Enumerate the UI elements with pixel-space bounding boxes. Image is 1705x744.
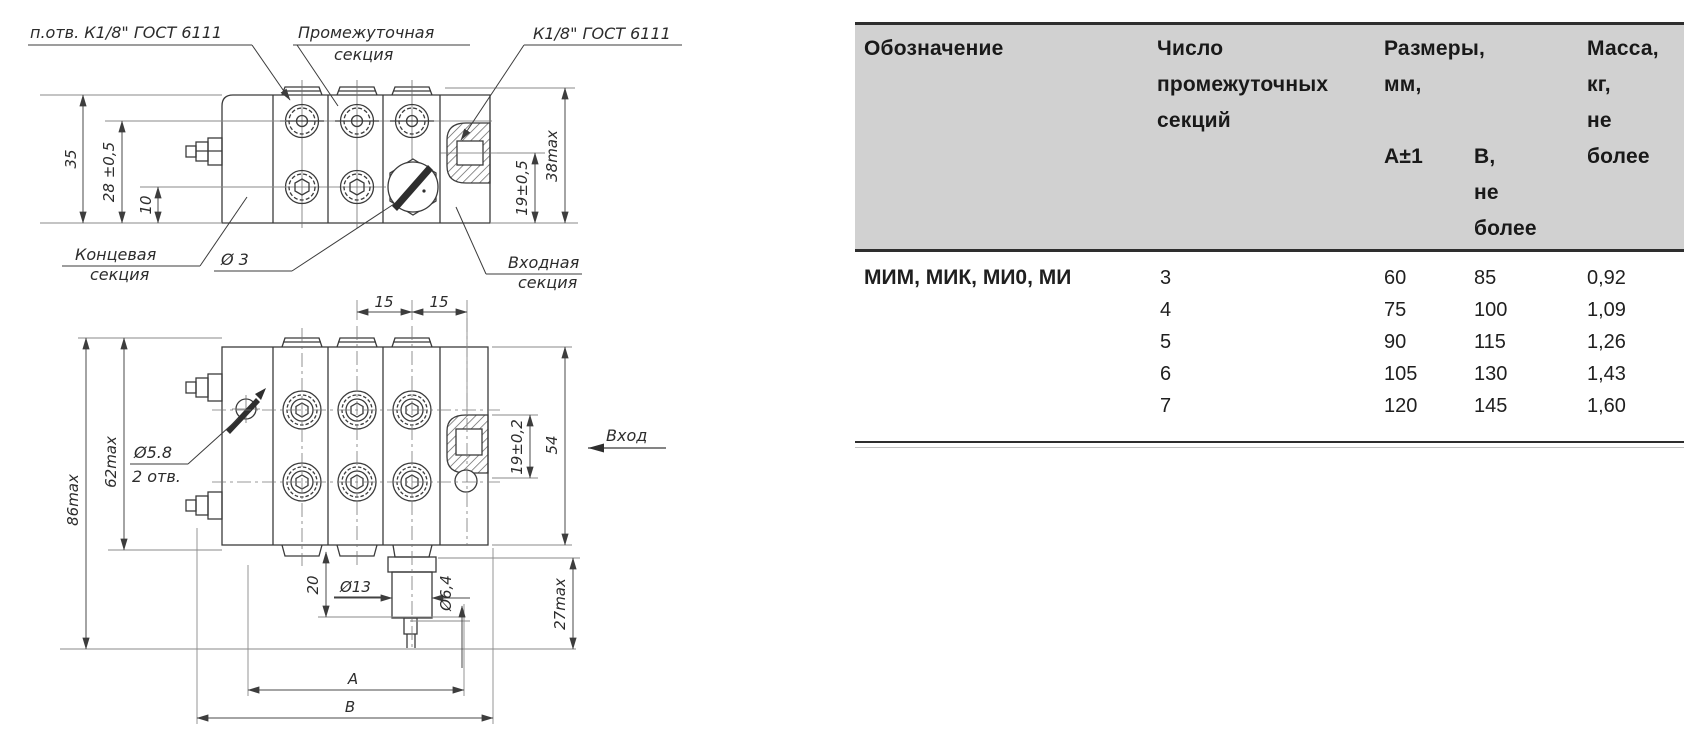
row-dim-b: 130 (1474, 363, 1507, 386)
col-dims-header-2: мм, (1384, 73, 1422, 97)
callout-hole-dia: Ø5.8 (133, 443, 172, 462)
callout-intermediate-2: секция (334, 45, 394, 64)
row-mass: 0,92 (1587, 267, 1626, 290)
inlet-flow-label: Вход (606, 426, 647, 445)
row-mass: 1,60 (1587, 395, 1626, 418)
row-dim-b: 100 (1474, 299, 1507, 322)
needle-indicator (388, 159, 438, 215)
callout-inlet-thread: К1/8" ГОСТ 6111 (533, 24, 671, 43)
subcol-b-header-2: не (1474, 181, 1499, 205)
dim-15-a: 15 (374, 293, 393, 311)
table-header-rule (855, 249, 1684, 252)
row-sections: 3 (1160, 267, 1171, 290)
dim-86max: 86max (64, 474, 82, 526)
top-view-callouts: п.отв. К1/8" ГОСТ 6111 Промежуточная сек… (28, 23, 682, 292)
row-dim-a: 60 (1384, 267, 1406, 290)
dim-B: B (345, 698, 355, 716)
col-sections-header-1: Число (1157, 37, 1223, 61)
col-sections-header-2: промежуточных (1157, 73, 1328, 97)
callout-inlet-section-1: Входная (508, 253, 580, 272)
dim-28: 28 ±0,5 (100, 142, 118, 202)
technical-drawing: 35 28 ±0,5 10 19±0,5 38max п.отв. К1/8" … (0, 0, 780, 744)
left-arrow-icon (588, 444, 604, 453)
subcol-b-header-1: В, (1474, 145, 1495, 169)
col-mass-header-4: более (1587, 145, 1650, 169)
row-sections: 7 (1160, 395, 1171, 418)
dim-19-02: 19±0,2 (508, 419, 526, 475)
row-mass: 1,26 (1587, 331, 1626, 354)
row-mass: 1,43 (1587, 363, 1626, 386)
callout-end-section-2: секция (90, 265, 150, 284)
callout-intermediate-1: Промежуточная (298, 23, 435, 42)
row-dim-b: 145 (1474, 395, 1507, 418)
bottom-view-ext (60, 300, 580, 724)
scanned-catalog-page: 35 28 ±0,5 10 19±0,5 38max п.отв. К1/8" … (0, 0, 1705, 744)
callout-tap-hole: п.отв. К1/8" ГОСТ 6111 (30, 23, 222, 42)
dim-13: Ø13 (339, 578, 371, 596)
table-bottom-rule-shadow (855, 447, 1684, 448)
col-mass-header-3: не (1587, 109, 1612, 133)
col-mass-header-2: кг, (1587, 73, 1611, 97)
row-sections: 5 (1160, 331, 1171, 354)
row-dim-a: 90 (1384, 331, 1406, 354)
dim-19-05: 19±0,5 (513, 160, 531, 216)
row-dim-a: 120 (1384, 395, 1417, 418)
dim-35: 35 (62, 149, 80, 168)
dim-10: 10 (137, 195, 155, 214)
col-mass-header-1: Масса, (1587, 37, 1659, 61)
callout-end-section-1: Концевая (75, 245, 157, 264)
col-sections-header-3: секций (1157, 109, 1231, 133)
row-dim-a: 75 (1384, 299, 1406, 322)
tie-bolts (186, 374, 222, 519)
row-sections: 4 (1160, 299, 1171, 322)
callout-needle-dia: Ø 3 (220, 250, 249, 269)
dim-27max: 27max (551, 578, 569, 630)
inlet-flow-callout: Вход (588, 426, 666, 453)
subcol-b-header-3: более (1474, 217, 1537, 241)
inlet-port-bottom (447, 415, 488, 492)
dim-15-b: 15 (429, 293, 448, 311)
row-dim-b: 85 (1474, 267, 1496, 290)
top-view-dimensions (40, 88, 578, 223)
col-dims-header-1: Размеры, (1384, 37, 1485, 61)
mount-hole (226, 388, 266, 434)
row-dim-a: 105 (1384, 363, 1417, 386)
dim-A: A (347, 670, 358, 688)
callout-hole-qty: 2 отв. (132, 467, 181, 486)
table-bottom-rule (855, 441, 1684, 443)
end-bolt-icon (186, 138, 222, 165)
dim-20: 20 (304, 575, 322, 594)
dim-62max: 62max (102, 436, 120, 488)
callout-inlet-section-2: секция (518, 273, 578, 292)
row-sections: 6 (1160, 363, 1171, 386)
dim-38max: 38max (543, 130, 561, 182)
top-view (186, 80, 498, 228)
designation-value: МИМ, МИК, МИ0, МИ (864, 266, 1071, 290)
dim-6-4: Ø6,4 (437, 575, 455, 612)
col-designation-header: Обозначение (864, 37, 1003, 61)
dim-54: 54 (543, 435, 561, 454)
row-dim-b: 115 (1474, 331, 1506, 354)
row-mass: 1,09 (1587, 299, 1626, 322)
subcol-a-header: А±1 (1384, 145, 1423, 169)
inlet-port-hatched (440, 123, 498, 183)
